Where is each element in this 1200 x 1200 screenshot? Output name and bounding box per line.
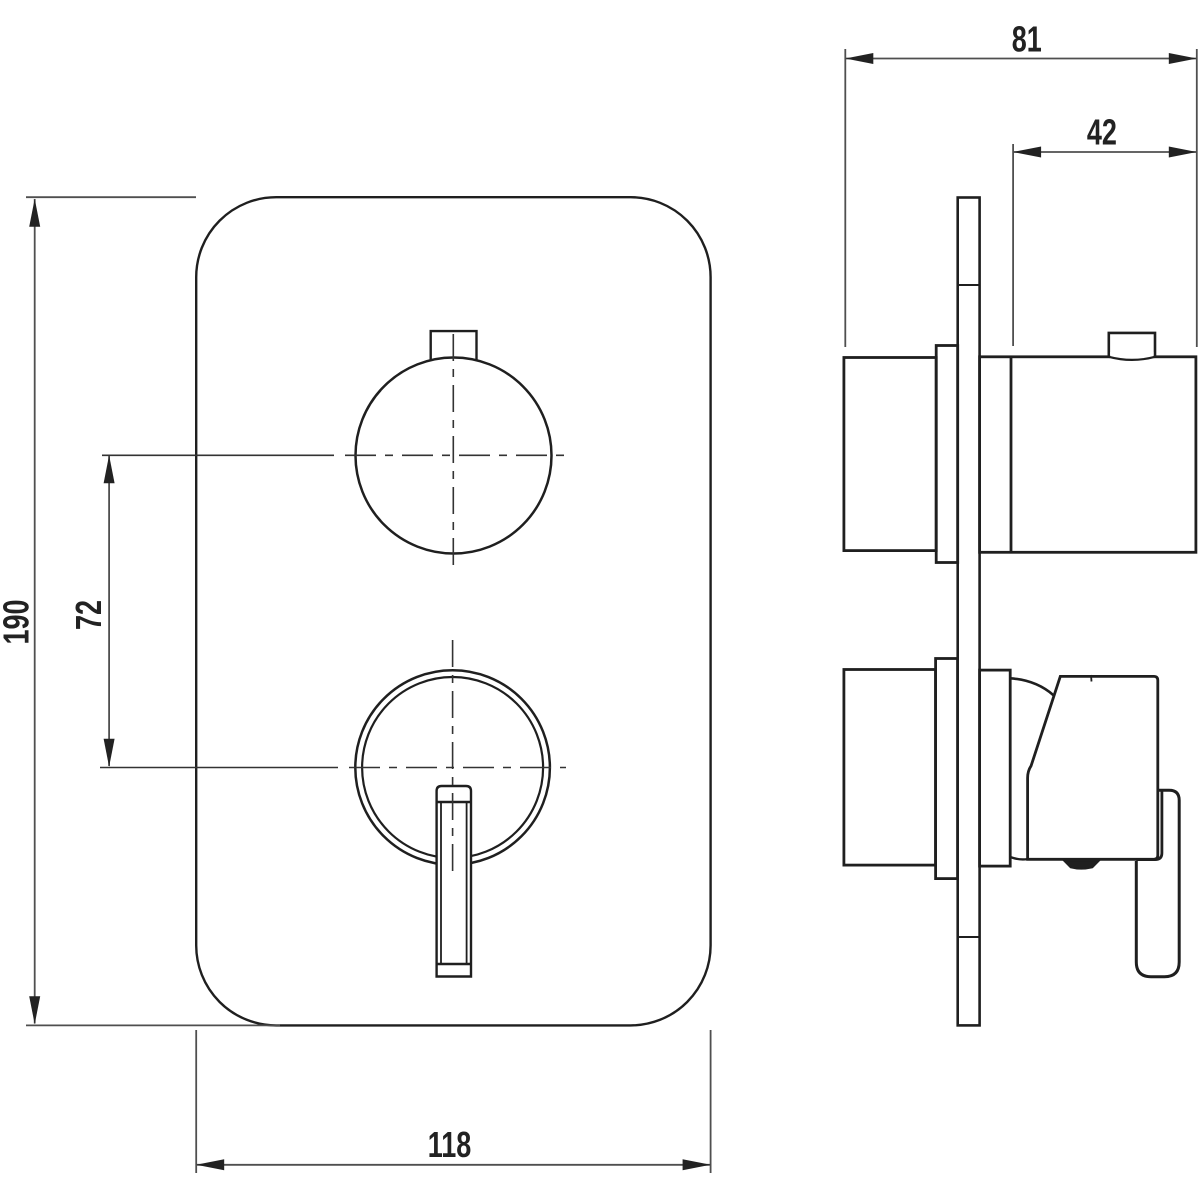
svg-text:81: 81: [1012, 19, 1042, 60]
svg-text:118: 118: [428, 1124, 472, 1165]
svg-text:190: 190: [0, 599, 36, 644]
svg-text:42: 42: [1087, 112, 1117, 153]
svg-text:72: 72: [68, 600, 109, 630]
